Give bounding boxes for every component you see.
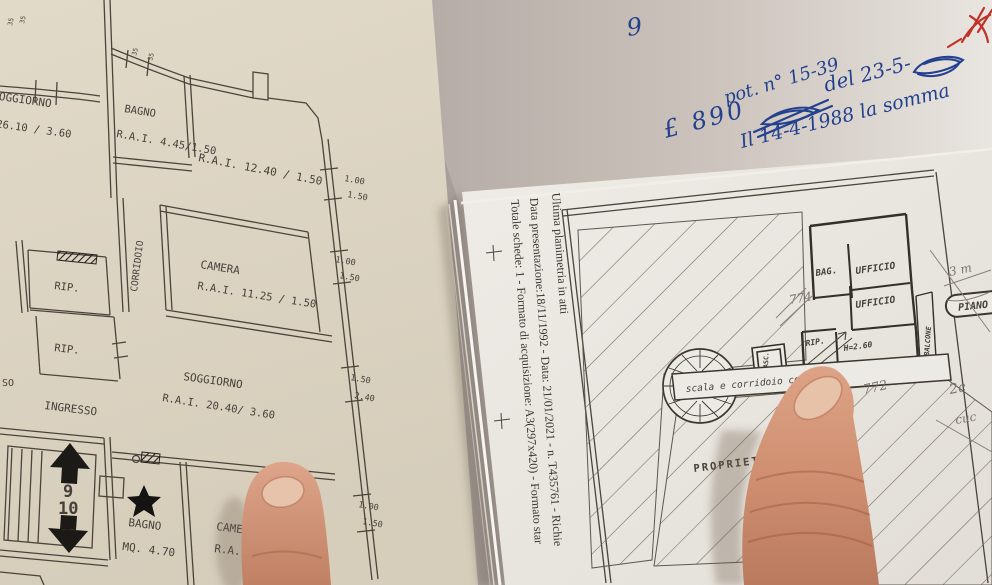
edge-text-fragment: SO (2, 378, 14, 389)
pencil-note-2c: 2c (947, 379, 967, 398)
window-hatch-symbol (141, 452, 160, 464)
room-label-asc: ASC. (762, 352, 771, 368)
stair-number-down: 10 (58, 499, 78, 519)
left-floorplan-sheet: SOGGIORNO R.A.I. 26.10 / 3.60 BAGNO R.A.… (0, 0, 478, 585)
photo-of-floorplan-documents: 9 pot. n° 15-39 £ 890 del 23-5- Il 14-4-… (0, 0, 992, 585)
